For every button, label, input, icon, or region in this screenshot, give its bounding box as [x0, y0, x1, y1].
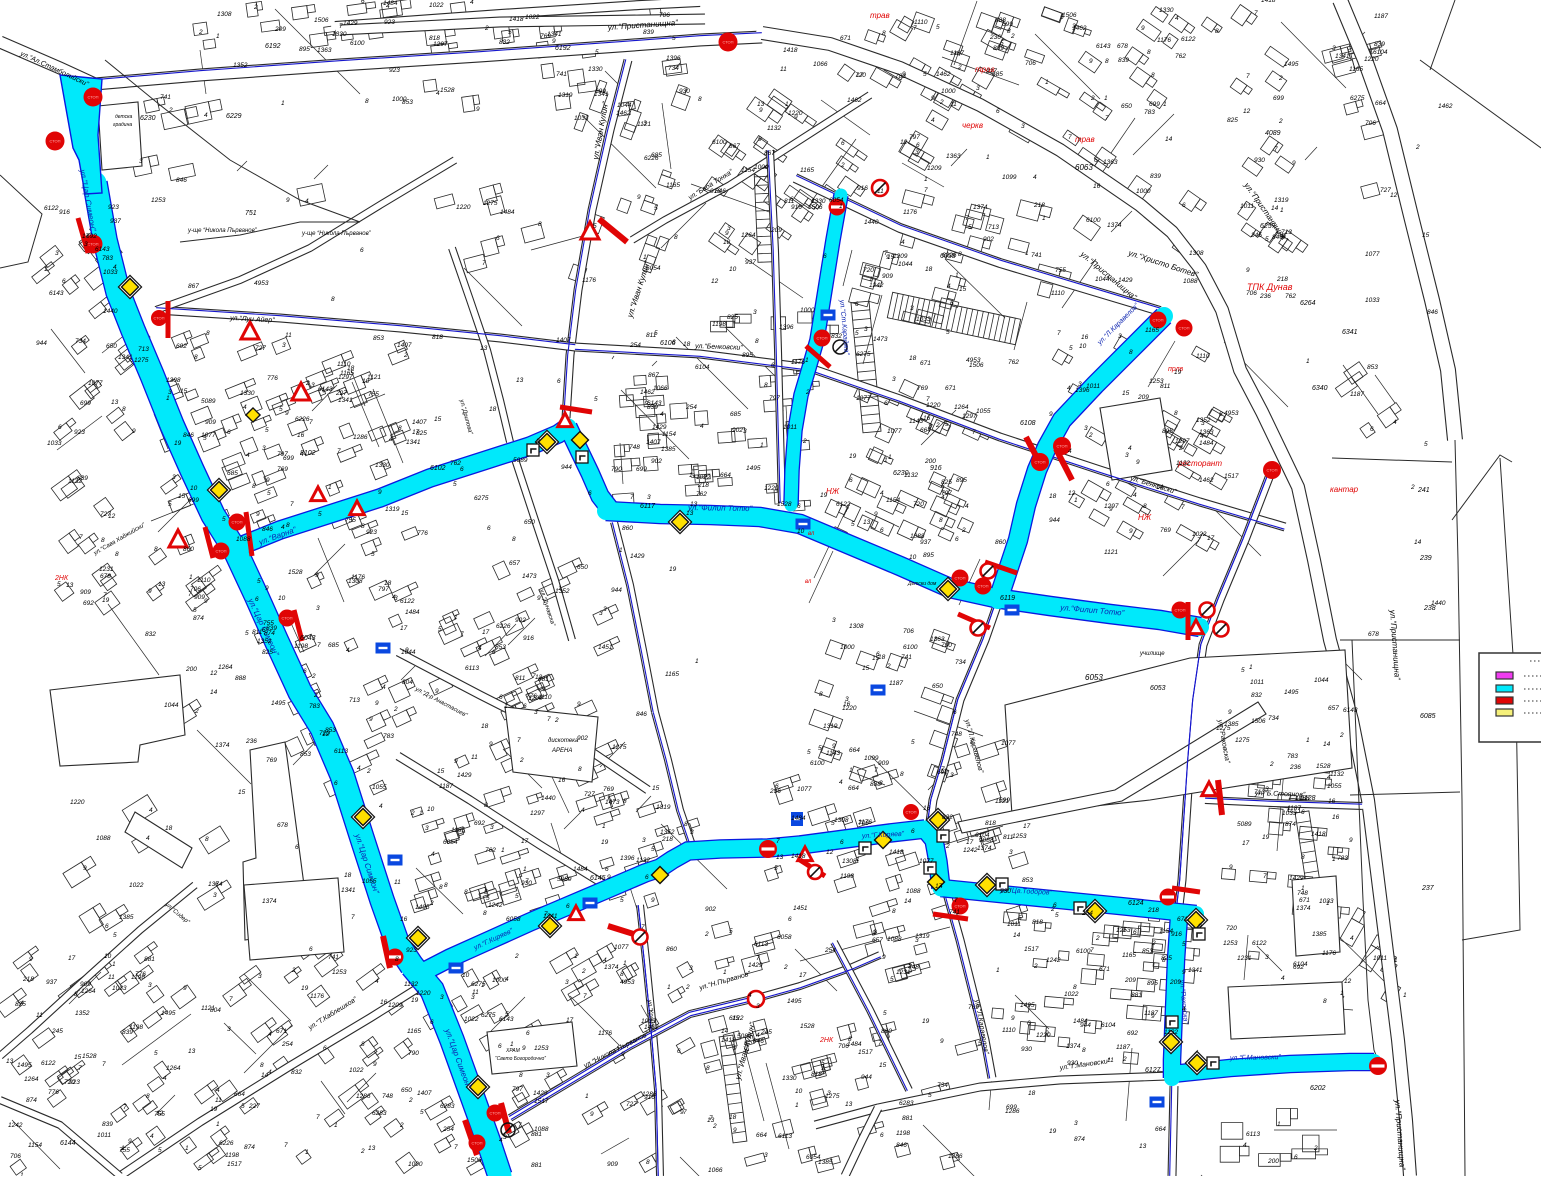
svg-text:846: 846 — [1427, 309, 1438, 316]
svg-text:1473: 1473 — [522, 573, 537, 580]
svg-text:1088: 1088 — [906, 888, 921, 895]
svg-text:12: 12 — [1344, 978, 1352, 985]
svg-text:699: 699 — [80, 400, 91, 407]
svg-text:218: 218 — [661, 836, 673, 843]
svg-text:853: 853 — [373, 335, 384, 342]
svg-text:8: 8 — [939, 517, 943, 524]
svg-text:776: 776 — [135, 971, 146, 978]
svg-text:1: 1 — [1340, 990, 1344, 997]
svg-text:923: 923 — [406, 947, 417, 954]
svg-text:7: 7 — [351, 914, 355, 921]
svg-text:8: 8 — [365, 98, 369, 105]
svg-text:3: 3 — [172, 474, 176, 481]
svg-text:1: 1 — [849, 767, 853, 774]
svg-text:5: 5 — [928, 1092, 932, 1099]
svg-text:1022: 1022 — [429, 2, 444, 9]
svg-text:15: 15 — [872, 655, 880, 662]
svg-text:776: 776 — [267, 375, 278, 382]
svg-text:СТОП: СТОП — [1174, 608, 1185, 613]
svg-text:1275: 1275 — [1235, 737, 1250, 744]
svg-text:1: 1 — [1042, 215, 1046, 222]
svg-text:1055: 1055 — [372, 784, 387, 791]
svg-text:4: 4 — [243, 404, 247, 411]
svg-text:9: 9 — [1141, 25, 1145, 32]
svg-text:6: 6 — [955, 536, 959, 543]
svg-text:1352: 1352 — [233, 62, 248, 69]
svg-text:839: 839 — [1374, 41, 1385, 48]
svg-text:3: 3 — [872, 930, 876, 937]
svg-text:1319: 1319 — [558, 92, 573, 99]
svg-text:1: 1 — [602, 823, 606, 830]
svg-text:4: 4 — [431, 851, 435, 858]
svg-text:1462: 1462 — [616, 110, 631, 117]
svg-text:6: 6 — [566, 903, 570, 910]
svg-text:1044: 1044 — [898, 261, 913, 268]
svg-text:4: 4 — [149, 807, 153, 814]
svg-text:5: 5 — [729, 928, 733, 935]
svg-text:8: 8 — [646, 1159, 650, 1166]
svg-text:6: 6 — [855, 301, 859, 308]
svg-text:1308: 1308 — [217, 11, 232, 18]
svg-text:5: 5 — [1055, 912, 1059, 919]
svg-text:1363: 1363 — [930, 636, 945, 643]
svg-text:727: 727 — [255, 345, 266, 352]
svg-text:5: 5 — [158, 1147, 162, 1154]
svg-text:9: 9 — [759, 107, 763, 114]
svg-text:5: 5 — [821, 1060, 825, 1067]
svg-text:657: 657 — [1328, 705, 1339, 712]
svg-text:1165: 1165 — [1122, 952, 1136, 959]
svg-text:839: 839 — [993, 45, 1004, 52]
svg-text:5: 5 — [57, 581, 61, 588]
svg-text:783: 783 — [102, 255, 113, 262]
svg-text:853: 853 — [495, 644, 506, 651]
svg-text:19: 19 — [669, 566, 677, 573]
svg-text:1176: 1176 — [858, 819, 872, 826]
svg-text:692: 692 — [176, 343, 187, 350]
svg-text:6: 6 — [1301, 809, 1305, 816]
svg-text:5: 5 — [1265, 236, 1269, 243]
svg-text:9: 9 — [1198, 923, 1202, 930]
svg-text:650: 650 — [401, 1087, 412, 1094]
svg-text:16: 16 — [1093, 183, 1101, 190]
svg-text:6145: 6145 — [590, 875, 606, 882]
svg-text:14: 14 — [1271, 205, 1279, 212]
svg-text:1374: 1374 — [215, 742, 230, 749]
svg-text:867: 867 — [764, 150, 775, 157]
svg-text:769: 769 — [1160, 527, 1171, 534]
svg-text:10: 10 — [1079, 343, 1087, 350]
svg-text:9: 9 — [931, 95, 935, 102]
svg-text:6264: 6264 — [1300, 300, 1316, 307]
svg-text:1: 1 — [955, 272, 959, 279]
svg-text:9: 9 — [758, 136, 762, 143]
svg-text:209: 209 — [770, 227, 782, 234]
svg-text:860: 860 — [622, 525, 633, 532]
svg-text:650: 650 — [106, 343, 117, 350]
svg-text:6143: 6143 — [49, 290, 64, 297]
svg-text:818: 818 — [985, 820, 996, 827]
svg-text:2: 2 — [1313, 1145, 1318, 1152]
svg-text:846: 846 — [1272, 234, 1283, 241]
svg-text:5: 5 — [945, 421, 949, 428]
svg-text:19: 19 — [601, 839, 609, 846]
svg-text:1: 1 — [795, 1102, 799, 1109]
svg-text:1451: 1451 — [793, 905, 808, 912]
svg-text:930: 930 — [679, 88, 690, 95]
svg-text:825: 825 — [727, 314, 738, 321]
svg-text:944: 944 — [561, 464, 572, 471]
svg-text:14: 14 — [904, 898, 912, 905]
svg-text:783: 783 — [1337, 855, 1348, 862]
svg-text:762: 762 — [1008, 359, 1019, 366]
svg-text:1: 1 — [1249, 664, 1253, 671]
svg-text:1506: 1506 — [467, 1157, 482, 1164]
svg-text:8: 8 — [115, 551, 119, 558]
svg-text:7: 7 — [1090, 947, 1094, 954]
svg-text:СТОП: СТОП — [1056, 444, 1067, 449]
svg-text:6: 6 — [797, 503, 801, 510]
svg-text:1330: 1330 — [782, 1075, 797, 1082]
svg-text:1132: 1132 — [1330, 771, 1344, 778]
svg-text:4: 4 — [478, 645, 482, 652]
svg-text:6: 6 — [255, 596, 259, 603]
svg-text:6: 6 — [645, 874, 649, 881]
svg-text:9: 9 — [590, 1111, 594, 1118]
svg-text:7: 7 — [316, 1114, 320, 1121]
svg-text:867: 867 — [729, 143, 740, 150]
svg-text:1495: 1495 — [271, 700, 286, 707]
svg-text:1264: 1264 — [166, 1065, 181, 1072]
svg-text:13: 13 — [863, 519, 871, 526]
svg-text:10: 10 — [278, 595, 286, 602]
svg-text:17: 17 — [1023, 823, 1031, 830]
svg-text:13: 13 — [1139, 1143, 1147, 1150]
svg-text:5: 5 — [515, 893, 519, 900]
svg-text:1088: 1088 — [534, 1126, 549, 1133]
svg-text:1: 1 — [112, 961, 116, 968]
svg-text:1275: 1275 — [483, 200, 498, 207]
svg-text:1495: 1495 — [161, 1010, 176, 1017]
svg-text:776: 776 — [417, 530, 428, 537]
svg-text:1176: 1176 — [1322, 950, 1336, 957]
svg-text:6143: 6143 — [318, 386, 333, 393]
svg-text:1330: 1330 — [332, 31, 347, 38]
svg-text:699: 699 — [636, 466, 647, 473]
svg-text:1154: 1154 — [886, 497, 900, 504]
svg-text:1165: 1165 — [666, 182, 680, 189]
svg-text:СТОП: СТОП — [1034, 460, 1045, 465]
svg-text:7: 7 — [954, 897, 958, 904]
svg-text:1022: 1022 — [1064, 991, 1079, 998]
svg-text:18: 18 — [481, 723, 489, 730]
svg-text:10: 10 — [462, 972, 470, 979]
svg-text:17: 17 — [1207, 535, 1215, 542]
svg-text:1: 1 — [574, 953, 578, 960]
svg-text:664: 664 — [848, 785, 859, 792]
svg-text:4: 4 — [700, 423, 704, 430]
svg-text:7: 7 — [1181, 504, 1185, 511]
svg-text:7: 7 — [460, 631, 464, 638]
svg-text:5: 5 — [265, 427, 269, 434]
svg-text:5: 5 — [672, 35, 676, 42]
svg-text:6: 6 — [492, 649, 496, 656]
svg-text:5: 5 — [241, 1103, 245, 1110]
svg-text:790: 790 — [408, 1050, 419, 1057]
svg-text:1374: 1374 — [1296, 905, 1311, 912]
svg-text:1022: 1022 — [349, 1067, 364, 1074]
svg-text:1044: 1044 — [1314, 677, 1329, 684]
svg-text:825: 825 — [15, 1001, 26, 1008]
svg-text:8: 8 — [206, 330, 210, 337]
svg-text:СТОП: СТОП — [954, 904, 965, 909]
svg-text:6: 6 — [460, 466, 464, 473]
svg-text:741: 741 — [556, 71, 567, 78]
svg-text:916: 916 — [523, 635, 534, 642]
svg-text:2: 2 — [291, 967, 296, 974]
svg-text:6117: 6117 — [640, 503, 656, 510]
svg-text:5: 5 — [1069, 345, 1073, 352]
svg-text:6: 6 — [950, 300, 954, 307]
svg-text:1264: 1264 — [218, 664, 233, 671]
svg-text:6143: 6143 — [499, 1016, 514, 1023]
svg-text:790: 790 — [611, 466, 622, 473]
svg-text:6: 6 — [323, 1045, 327, 1052]
svg-text:14: 14 — [1165, 136, 1173, 143]
svg-text:825: 825 — [941, 479, 952, 486]
svg-text:8: 8 — [395, 956, 399, 963]
svg-text:8: 8 — [755, 338, 759, 345]
svg-text:2: 2 — [1151, 940, 1156, 947]
svg-text:748: 748 — [1297, 890, 1308, 897]
svg-text:1110: 1110 — [538, 694, 552, 701]
svg-text:783: 783 — [1287, 753, 1298, 760]
svg-text:3: 3 — [753, 309, 757, 316]
svg-text:1407: 1407 — [397, 342, 412, 349]
svg-text:664: 664 — [756, 1132, 767, 1139]
svg-text:у-ще “Никола Първанов”: у-ще “Никола Първанов” — [301, 231, 372, 237]
svg-text:1: 1 — [619, 547, 623, 554]
svg-text:15: 15 — [652, 785, 660, 792]
svg-text:832: 832 — [831, 333, 842, 340]
svg-text:1176: 1176 — [791, 359, 805, 366]
svg-text:1000: 1000 — [492, 977, 507, 984]
svg-text:19: 19 — [849, 453, 857, 460]
svg-text:846: 846 — [896, 1142, 907, 1149]
svg-text:1198: 1198 — [840, 873, 854, 880]
svg-text:5: 5 — [620, 897, 624, 904]
svg-text:1220: 1220 — [1364, 56, 1379, 63]
svg-text:1484: 1484 — [405, 609, 420, 616]
svg-text:8: 8 — [882, 30, 886, 37]
svg-text:1198: 1198 — [896, 1130, 910, 1137]
svg-text:1242: 1242 — [869, 282, 884, 289]
svg-text:1308: 1308 — [849, 623, 864, 630]
svg-text:3: 3 — [311, 382, 315, 389]
svg-text:734: 734 — [1268, 715, 1279, 722]
svg-text:10: 10 — [909, 554, 917, 561]
svg-text:9: 9 — [794, 114, 798, 121]
svg-text:5: 5 — [946, 329, 950, 336]
svg-text:6: 6 — [215, 881, 219, 888]
svg-text:5: 5 — [890, 976, 894, 983]
svg-text:664: 664 — [1155, 1126, 1166, 1133]
svg-text:7: 7 — [123, 1104, 127, 1111]
svg-text:8: 8 — [1323, 998, 1327, 1005]
svg-text:1033: 1033 — [103, 269, 118, 276]
svg-text:5089: 5089 — [737, 1033, 752, 1040]
svg-text:9: 9 — [315, 572, 319, 579]
svg-text:1: 1 — [585, 1093, 589, 1100]
svg-text:8: 8 — [483, 910, 487, 917]
svg-text:1308: 1308 — [842, 858, 857, 865]
svg-text:874: 874 — [264, 630, 275, 637]
svg-text:12: 12 — [1243, 108, 1251, 115]
svg-text:1341: 1341 — [543, 913, 558, 920]
svg-text:2: 2 — [704, 931, 709, 938]
svg-text:6: 6 — [303, 668, 307, 675]
svg-text:8: 8 — [444, 882, 448, 889]
svg-text:218: 218 — [1276, 276, 1288, 283]
svg-text:12: 12 — [322, 731, 330, 738]
svg-text:1: 1 — [723, 969, 727, 976]
svg-text:923: 923 — [389, 67, 400, 74]
svg-text:4: 4 — [375, 978, 379, 985]
svg-text:4: 4 — [880, 490, 884, 497]
svg-text:916: 916 — [930, 465, 942, 472]
svg-text:2: 2 — [1033, 963, 1038, 970]
svg-text:902: 902 — [577, 735, 588, 742]
svg-text:13: 13 — [516, 377, 524, 384]
svg-text:1341: 1341 — [341, 887, 356, 894]
svg-text:1044: 1044 — [617, 102, 632, 109]
svg-text:874: 874 — [244, 1144, 255, 1151]
svg-text:685: 685 — [651, 152, 662, 159]
svg-text:13: 13 — [158, 581, 166, 588]
svg-text:5: 5 — [595, 49, 599, 56]
svg-text:706: 706 — [10, 1153, 21, 1160]
svg-text:874: 874 — [193, 615, 204, 622]
svg-text:685: 685 — [730, 411, 741, 418]
svg-text:1264: 1264 — [741, 232, 756, 239]
svg-text:13: 13 — [480, 345, 488, 352]
svg-text:227: 227 — [335, 390, 347, 397]
svg-text:755: 755 — [1055, 267, 1066, 274]
svg-text:1374: 1374 — [604, 964, 619, 971]
svg-text:10: 10 — [104, 953, 112, 960]
svg-text:741: 741 — [328, 954, 339, 961]
svg-text:3: 3 — [764, 1152, 768, 1159]
svg-text:4: 4 — [839, 779, 843, 786]
svg-text:19: 19 — [1049, 1128, 1057, 1135]
svg-text:2: 2 — [519, 757, 524, 764]
svg-text:1187: 1187 — [439, 783, 453, 790]
svg-text:6226: 6226 — [295, 416, 310, 423]
svg-text:СТОП: СТОП — [215, 549, 226, 554]
svg-text:18: 18 — [489, 406, 497, 413]
svg-text:902: 902 — [705, 906, 716, 913]
svg-text:8: 8 — [101, 537, 105, 544]
svg-text:6124: 6124 — [1128, 900, 1144, 907]
svg-text:3: 3 — [845, 696, 849, 703]
svg-text:8: 8 — [1129, 349, 1133, 356]
svg-text:2: 2 — [945, 843, 950, 850]
svg-text:СТОП: СТОП — [1152, 318, 1163, 323]
svg-text:18: 18 — [344, 872, 352, 879]
svg-text:6: 6 — [227, 429, 231, 436]
svg-text:664: 664 — [849, 747, 860, 754]
svg-text:1088: 1088 — [236, 536, 251, 543]
svg-text:1187: 1187 — [1116, 1044, 1130, 1051]
svg-text:1385: 1385 — [119, 914, 134, 921]
svg-text:11: 11 — [877, 188, 884, 195]
svg-text:720: 720 — [863, 267, 874, 274]
svg-text:4: 4 — [150, 1133, 154, 1140]
svg-text:1: 1 — [1025, 250, 1029, 257]
svg-text:7: 7 — [290, 501, 294, 508]
svg-text:9: 9 — [1229, 864, 1233, 871]
svg-text:6: 6 — [523, 703, 527, 710]
svg-text:кантар: кантар — [1330, 485, 1359, 494]
svg-text:6226: 6226 — [942, 252, 957, 259]
svg-text:1352: 1352 — [257, 638, 272, 645]
svg-text:6: 6 — [911, 828, 915, 835]
svg-text:1462: 1462 — [640, 389, 655, 396]
svg-text:888: 888 — [870, 781, 881, 788]
svg-text:19: 19 — [1262, 834, 1270, 841]
svg-text:1495: 1495 — [1020, 1002, 1035, 1009]
svg-text:СТОП: СТОП — [977, 584, 988, 589]
svg-text:4: 4 — [1393, 419, 1397, 426]
svg-text:769: 769 — [540, 33, 551, 40]
svg-text:15: 15 — [959, 286, 967, 293]
svg-text:4089: 4089 — [1265, 130, 1281, 137]
svg-text:1: 1 — [501, 847, 505, 854]
svg-text:6: 6 — [1294, 1154, 1298, 1161]
svg-text:254: 254 — [281, 1041, 293, 1048]
svg-text:трав: трав — [1075, 135, 1095, 144]
svg-text:АРЕНА: АРЕНА — [551, 748, 572, 754]
svg-text:4: 4 — [382, 684, 386, 691]
svg-text:3: 3 — [603, 606, 607, 613]
svg-text:1462: 1462 — [1438, 103, 1453, 110]
svg-text:3: 3 — [915, 149, 919, 156]
svg-text:706: 706 — [1025, 60, 1036, 67]
svg-text:2: 2 — [403, 352, 408, 359]
svg-text:15: 15 — [1422, 232, 1430, 239]
svg-text:5: 5 — [818, 745, 822, 752]
svg-text:12: 12 — [108, 513, 116, 520]
svg-text:846: 846 — [176, 177, 187, 184]
svg-text:860: 860 — [666, 946, 677, 953]
svg-text:1462: 1462 — [847, 97, 862, 104]
svg-text:671: 671 — [276, 1028, 287, 1035]
svg-text:6: 6 — [309, 946, 313, 953]
svg-text:846: 846 — [715, 188, 726, 195]
svg-text:797: 797 — [378, 586, 389, 593]
svg-text:3: 3 — [546, 1072, 550, 1079]
svg-text:6: 6 — [823, 253, 827, 260]
svg-text:4: 4 — [947, 283, 951, 290]
svg-text:2: 2 — [1088, 432, 1093, 439]
svg-text:923: 923 — [384, 19, 395, 26]
svg-text:5: 5 — [936, 24, 940, 31]
svg-text:1: 1 — [1045, 79, 1049, 86]
svg-text:9: 9 — [1049, 411, 1053, 418]
svg-text:1209: 1209 — [893, 253, 908, 260]
svg-text:254: 254 — [629, 342, 641, 349]
svg-text:1484: 1484 — [791, 815, 806, 822]
